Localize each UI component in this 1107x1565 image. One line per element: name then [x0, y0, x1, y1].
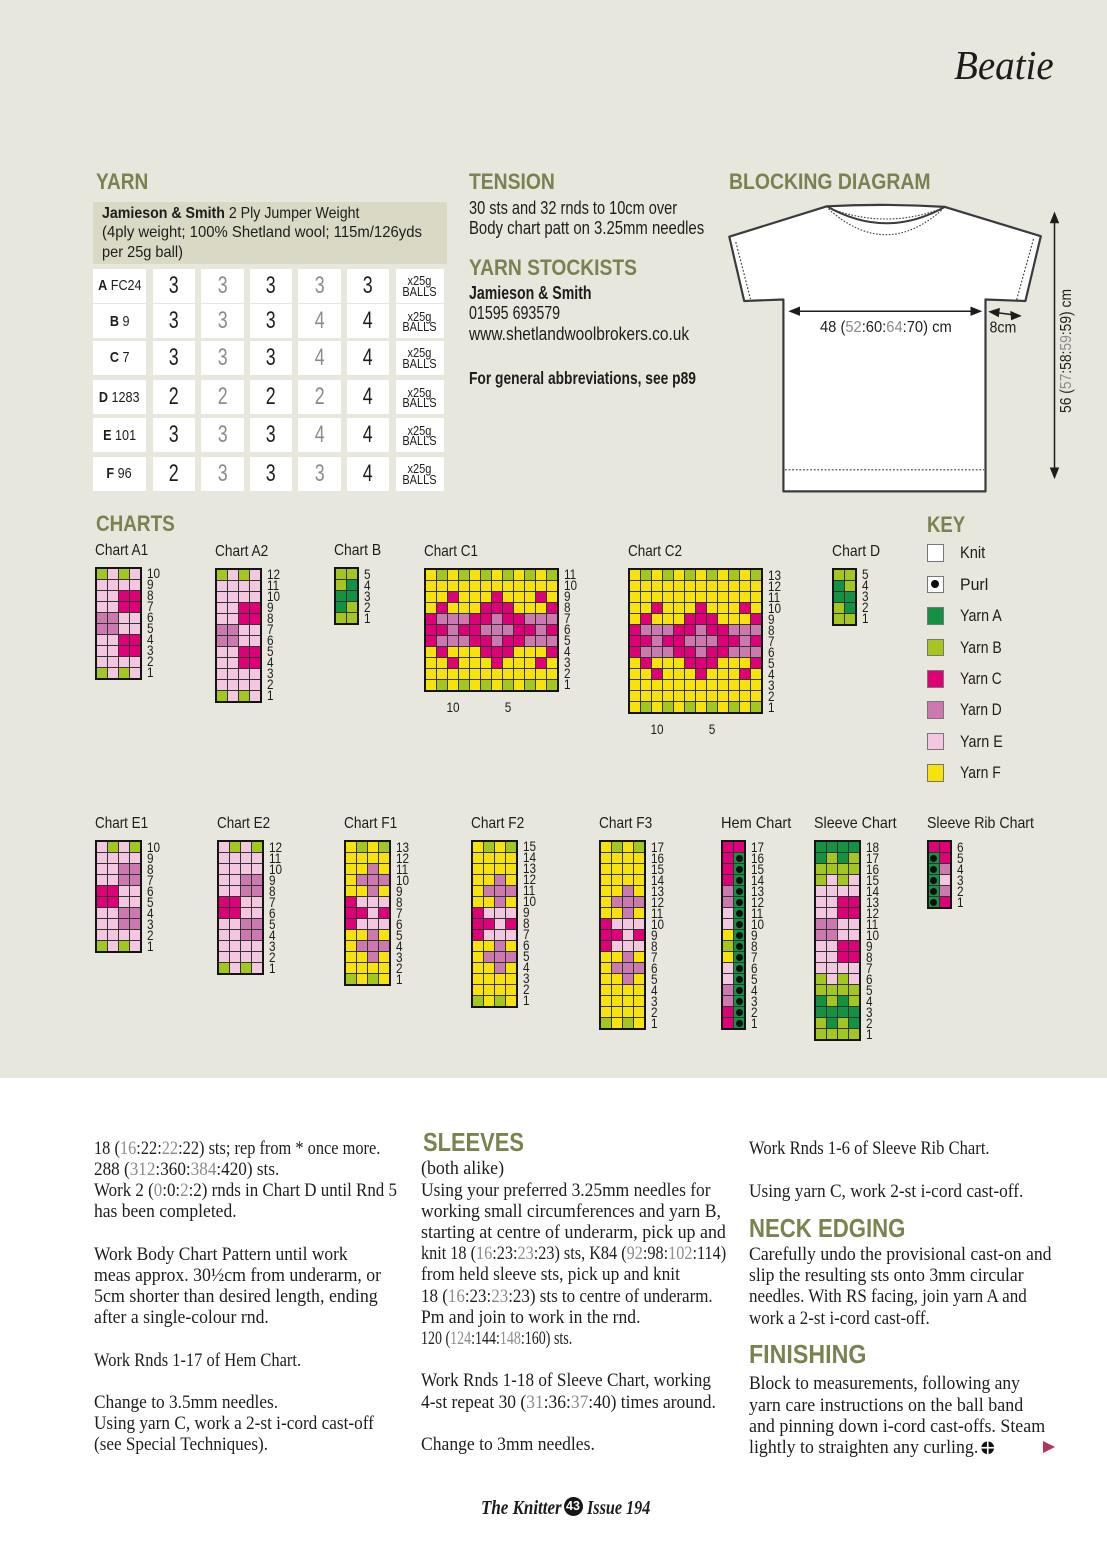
svg-text:56 (57:58:59:59) cm: 56 (57:58:59:59) cm — [1058, 289, 1075, 413]
svg-text:8cm: 8cm — [990, 320, 1017, 337]
svg-text:48 (52:60:64:70) cm: 48 (52:60:64:70) cm — [820, 319, 952, 336]
